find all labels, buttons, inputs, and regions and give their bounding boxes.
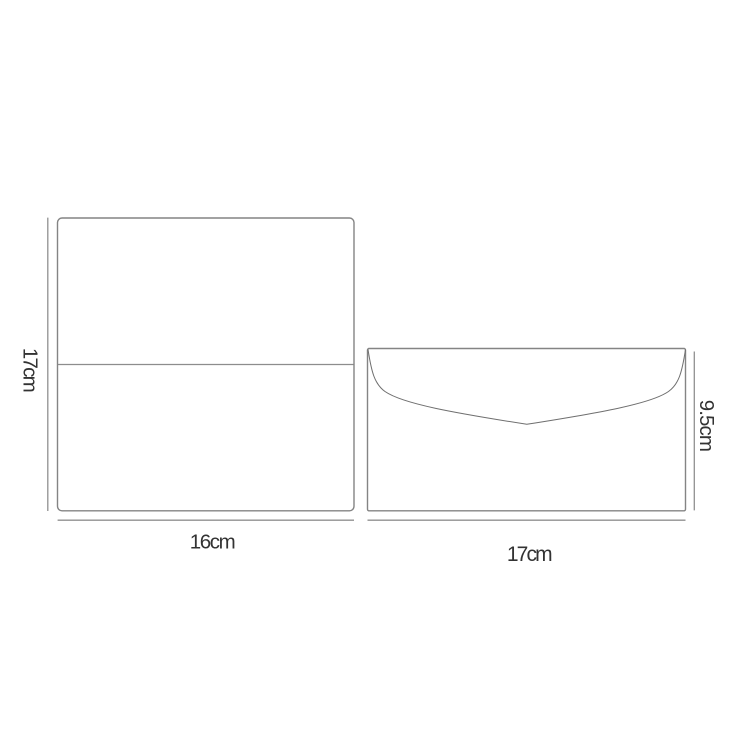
svg-text:9.5cm: 9.5cm: [695, 400, 718, 451]
svg-text:16cm: 16cm: [190, 531, 235, 554]
svg-text:17cm: 17cm: [19, 348, 42, 392]
svg-text:17cm: 17cm: [507, 543, 552, 566]
